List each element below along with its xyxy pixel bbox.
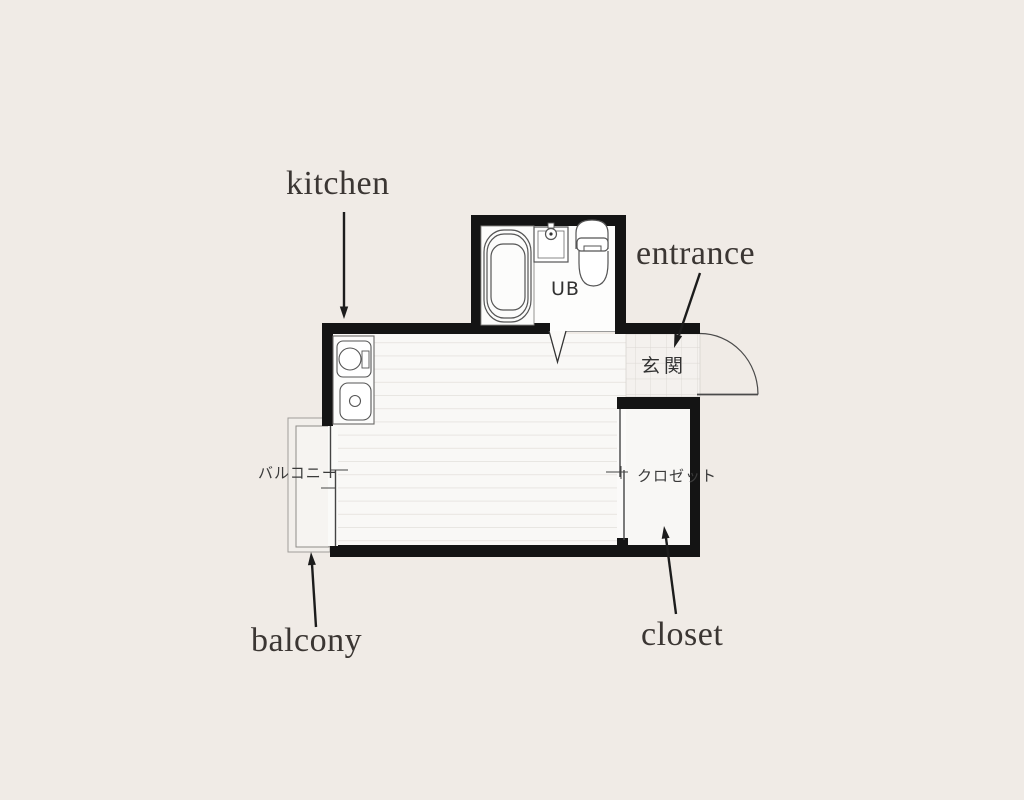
bathroom-right-wall bbox=[615, 215, 626, 334]
kitchen-sink-icon bbox=[340, 383, 371, 420]
floor-plan-drawing bbox=[0, 0, 1024, 800]
entrance-bottom-wall bbox=[617, 397, 700, 409]
closet-label: closet bbox=[641, 616, 723, 654]
kitchen-label: kitchen bbox=[286, 165, 390, 203]
bathroom-left-wall bbox=[471, 215, 482, 334]
kitchen-arrow bbox=[340, 212, 348, 319]
entrance-label: entrance bbox=[636, 235, 755, 273]
bottom-wall bbox=[330, 545, 700, 557]
unit-bath-room-label: UB bbox=[551, 278, 580, 300]
balcony-label: balcony bbox=[251, 622, 362, 660]
balcony-room-label: バルコニー bbox=[258, 462, 338, 483]
toilet-icon bbox=[576, 220, 608, 286]
bathtub-icon bbox=[481, 226, 534, 325]
washbasin-icon bbox=[534, 223, 568, 262]
kitchen-unit bbox=[333, 336, 374, 424]
closet-door-stub bbox=[617, 538, 628, 547]
main-left-wall bbox=[322, 323, 333, 426]
balcony-inner bbox=[296, 426, 329, 547]
door-swing-arc bbox=[697, 333, 758, 394]
entrance-top-wall bbox=[626, 323, 700, 334]
floor-plan-page: kitchen entrance balcony closet UB 玄関 バル… bbox=[0, 0, 1024, 800]
closet-room-label: クロゼット bbox=[637, 465, 717, 486]
stove-burner-icon bbox=[337, 341, 371, 377]
balcony-arrow bbox=[308, 552, 316, 627]
genkan-room-label: 玄関 bbox=[641, 351, 687, 378]
